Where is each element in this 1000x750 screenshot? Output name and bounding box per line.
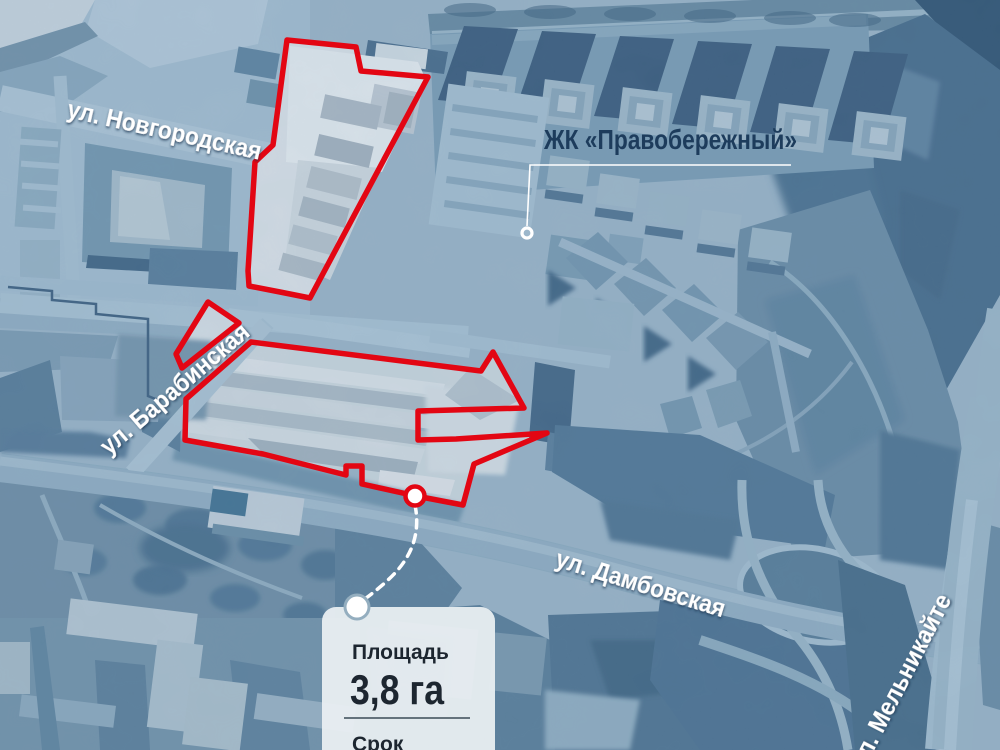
- svg-text:3,8 га: 3,8 га: [350, 666, 445, 713]
- svg-text:Площадь: Площадь: [352, 641, 449, 664]
- svg-text:Срок: Срок: [352, 733, 404, 750]
- svg-text:ЖК «Правобережный»: ЖК «Правобережный»: [543, 124, 797, 155]
